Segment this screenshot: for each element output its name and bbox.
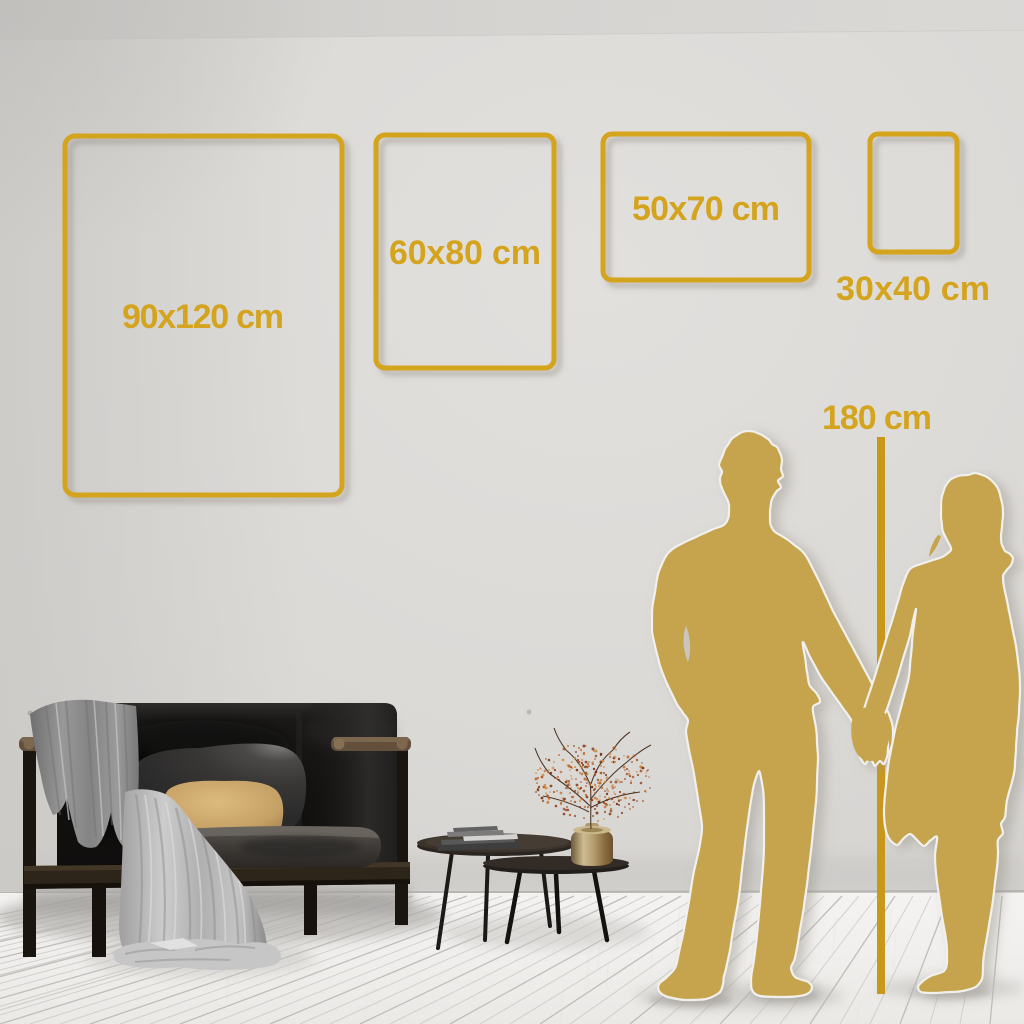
svg-text:60x80 cm: 60x80 cm [389, 234, 541, 272]
svg-text:50x70 cm: 50x70 cm [632, 190, 780, 228]
svg-text:30x40 cm: 30x40 cm [836, 270, 990, 308]
svg-text:180 cm: 180 cm [822, 399, 932, 437]
svg-text:90x120 cm: 90x120 cm [122, 298, 284, 336]
